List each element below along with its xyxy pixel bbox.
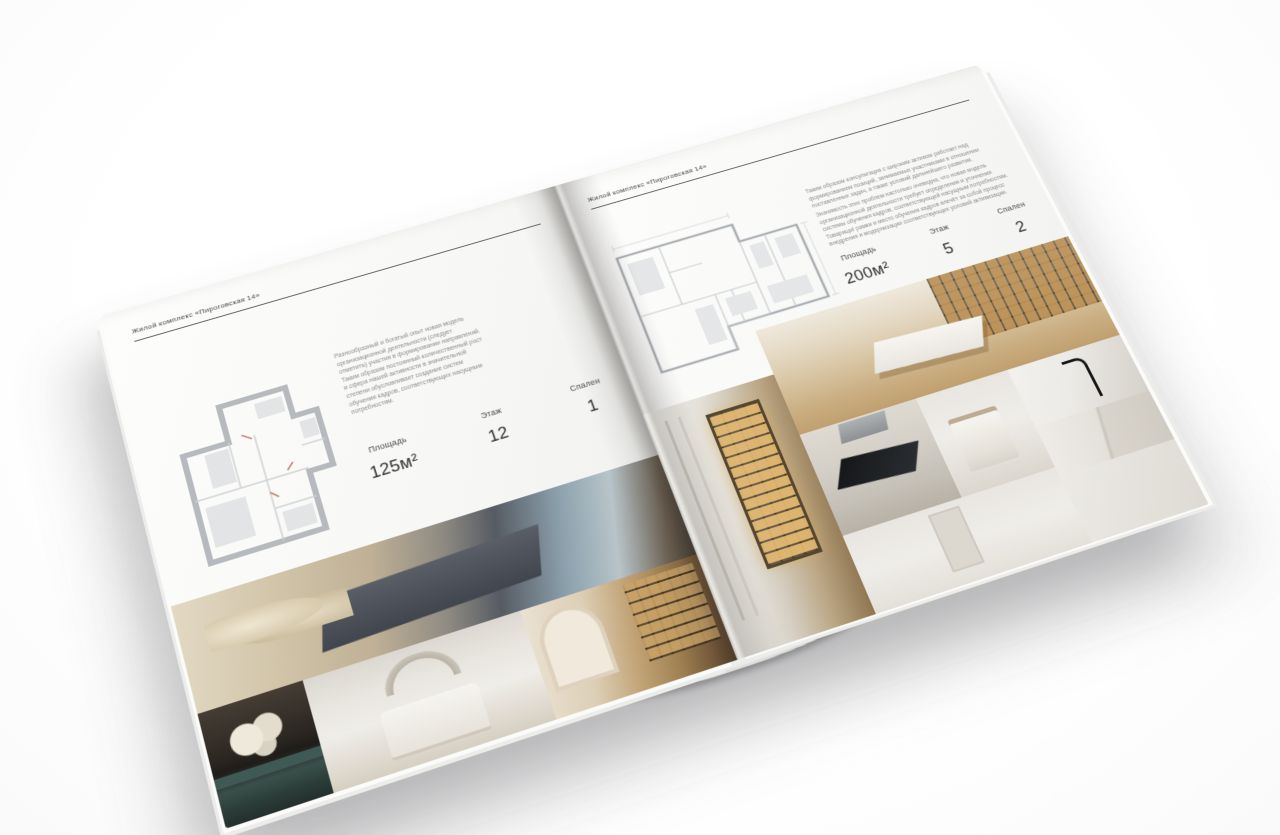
spec-floor: Этаж 5 bbox=[928, 223, 962, 260]
spec-area-value: 125м² bbox=[368, 450, 421, 483]
spec-floor-value: 12 bbox=[485, 423, 512, 447]
left-page-header: Жилой комплекс «Пироговская 14» bbox=[131, 211, 541, 341]
complex-title: Жилой комплекс «Пироговская 14» bbox=[131, 211, 539, 335]
spec-area: Площадь 125м² bbox=[362, 433, 421, 483]
spec-bedrooms-value: 1 bbox=[575, 393, 611, 420]
spec-floor-label: Этаж bbox=[479, 406, 502, 421]
header-rule bbox=[134, 224, 541, 342]
spec-bedrooms-label: Спален bbox=[569, 376, 602, 393]
spec-bedrooms: Спален 1 bbox=[569, 376, 612, 419]
apartment-description: Разнообразный и богатый опыт новая модел… bbox=[333, 312, 497, 418]
spec-floor: Этаж 12 bbox=[479, 406, 512, 447]
brochure-spread: Жилой комплекс «Пироговская 14» bbox=[99, 65, 1209, 829]
